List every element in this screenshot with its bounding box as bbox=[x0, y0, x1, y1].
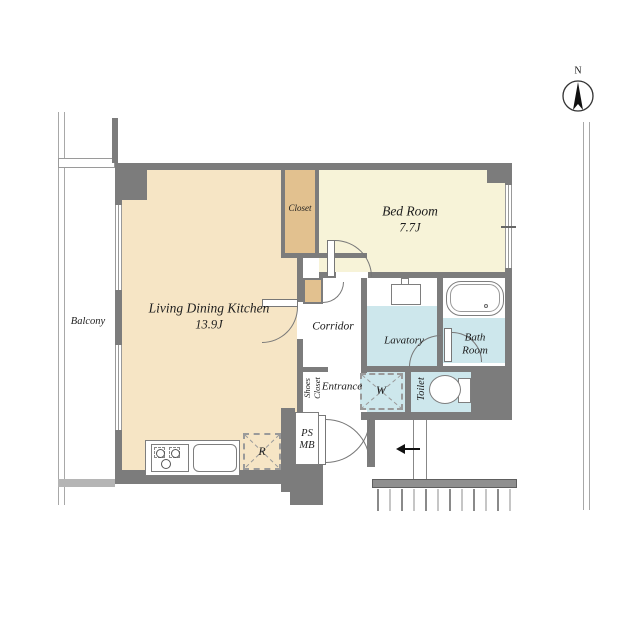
balcony-window bbox=[115, 345, 122, 430]
wall-bottom-right bbox=[361, 412, 512, 420]
washbasin-faucet-icon bbox=[401, 278, 409, 285]
balcony-window bbox=[115, 205, 122, 290]
compass-north-label: N bbox=[574, 65, 581, 77]
site-boundary-line bbox=[583, 122, 584, 510]
small-closet-door-arc bbox=[323, 282, 344, 303]
railing-baluster bbox=[497, 489, 499, 511]
railing-baluster bbox=[473, 489, 475, 511]
pipe-space-label: PS MB bbox=[299, 428, 314, 452]
balcony-divider-bottom bbox=[58, 479, 115, 487]
railing-baluster bbox=[413, 489, 415, 511]
lavatory-label: Lavatory bbox=[384, 335, 424, 348]
bedroom-window-tick bbox=[501, 226, 516, 228]
wall-left bbox=[115, 290, 122, 345]
wall-entrance-top bbox=[303, 367, 328, 372]
railing-baluster bbox=[461, 489, 463, 511]
entrance-label: Entrance bbox=[322, 381, 362, 394]
toilet-label: Toilet bbox=[416, 377, 428, 401]
balcony-boundary-line bbox=[58, 112, 59, 505]
wall-closet-left bbox=[281, 170, 285, 258]
balcony-boundary-line bbox=[64, 112, 65, 505]
wall-below-ps bbox=[281, 465, 323, 492]
wall-closet-right bbox=[315, 170, 319, 258]
railing-baluster bbox=[401, 489, 403, 511]
railing-baluster bbox=[485, 489, 487, 511]
wall-right bbox=[505, 268, 512, 420]
compass-icon bbox=[560, 78, 596, 118]
washbasin bbox=[391, 284, 421, 305]
site-boundary-line bbox=[589, 122, 590, 510]
corridor-label: Corridor bbox=[312, 320, 354, 333]
wall-top bbox=[115, 163, 512, 170]
bath-door-leaf bbox=[444, 328, 452, 362]
wall-above-unit bbox=[112, 118, 118, 163]
washer-label: W bbox=[376, 384, 386, 398]
wall-below-ps-step bbox=[290, 492, 323, 505]
wall-right bbox=[505, 163, 512, 185]
bedroom-area: 7.7J bbox=[399, 220, 420, 234]
wall-corridor-right bbox=[361, 278, 367, 373]
bedroom-door-leaf bbox=[327, 240, 335, 277]
bathtub-inner bbox=[450, 284, 500, 312]
approach-line bbox=[426, 420, 427, 480]
refrigerator-label: R bbox=[258, 445, 265, 459]
railing-baluster bbox=[449, 489, 451, 511]
approach-arrow-icon bbox=[396, 444, 422, 454]
bedroom-label: Bed Room 7.7J bbox=[382, 203, 438, 234]
wall-corridor-left bbox=[297, 258, 303, 302]
small-closet bbox=[303, 278, 323, 304]
wall-left bbox=[115, 170, 122, 205]
wall-washer-toilet bbox=[405, 372, 411, 412]
toilet-bowl bbox=[429, 375, 461, 404]
ldk-label: Living Dining Kitchen 13.9J bbox=[149, 300, 270, 331]
bathtub-drain-icon bbox=[484, 304, 488, 308]
railing-baluster bbox=[425, 489, 427, 511]
railing-baluster bbox=[389, 489, 391, 511]
wall-toilet-right-block bbox=[471, 372, 505, 412]
kitchen-sink bbox=[193, 444, 237, 472]
ldk-area: 13.9J bbox=[195, 317, 222, 331]
stove-burner-icon bbox=[161, 459, 171, 469]
railing-baluster bbox=[437, 489, 439, 511]
stove-burner-icon bbox=[169, 447, 180, 458]
railing-baluster bbox=[509, 489, 511, 511]
floor-plan: R W PS MB bbox=[0, 0, 640, 640]
wall-ps-left bbox=[281, 408, 295, 470]
railing-bar bbox=[372, 479, 517, 488]
railing-baluster bbox=[377, 489, 379, 511]
balcony-label: Balcony bbox=[71, 316, 105, 328]
shoes-closet-label: Shoes Closet bbox=[303, 377, 323, 399]
closet-label: Closet bbox=[288, 203, 311, 213]
bathroom-label: Bath Room bbox=[462, 331, 488, 356]
stove-burner-icon bbox=[154, 447, 165, 458]
balcony-divider-top bbox=[58, 158, 115, 168]
